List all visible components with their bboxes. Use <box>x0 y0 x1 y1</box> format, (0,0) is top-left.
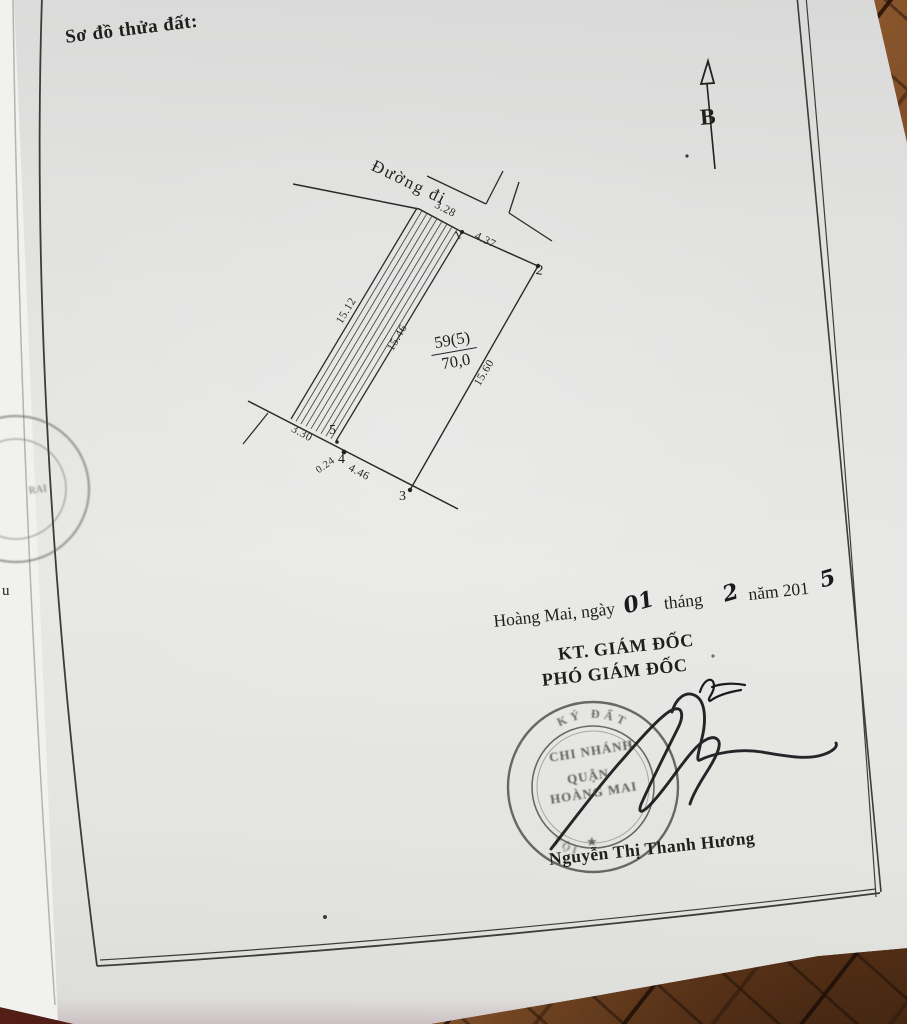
handwritten-month: 2 <box>719 578 741 607</box>
vertex-label-3: 3 <box>399 489 406 505</box>
handwritten-paraph <box>700 680 745 701</box>
ink-speck <box>711 654 714 657</box>
page-fold-line <box>13 0 55 1005</box>
ink-speck <box>685 154 688 157</box>
north-label: B <box>699 104 717 131</box>
page-border-frame <box>40 0 881 966</box>
vertex-label-4: 4 <box>338 452 345 468</box>
photo-of-document: { "header": { "title": "Sơ đồ thửa đất:"… <box>0 0 907 1024</box>
month-label: tháng <box>663 589 704 613</box>
stray-letter: u <box>2 583 10 600</box>
line-art-layer: KÝ ĐẤT TỘI ★ <box>0 0 907 1024</box>
year-label: năm 201 <box>747 578 810 604</box>
document-page: KÝ ĐẤT TỘI ★ Sơ đồ thửa đất: B Đường đi … <box>0 0 907 1024</box>
hatched-strip <box>296 211 457 439</box>
ink-speck <box>323 915 327 919</box>
vertex-label-5: 5 <box>329 423 336 439</box>
